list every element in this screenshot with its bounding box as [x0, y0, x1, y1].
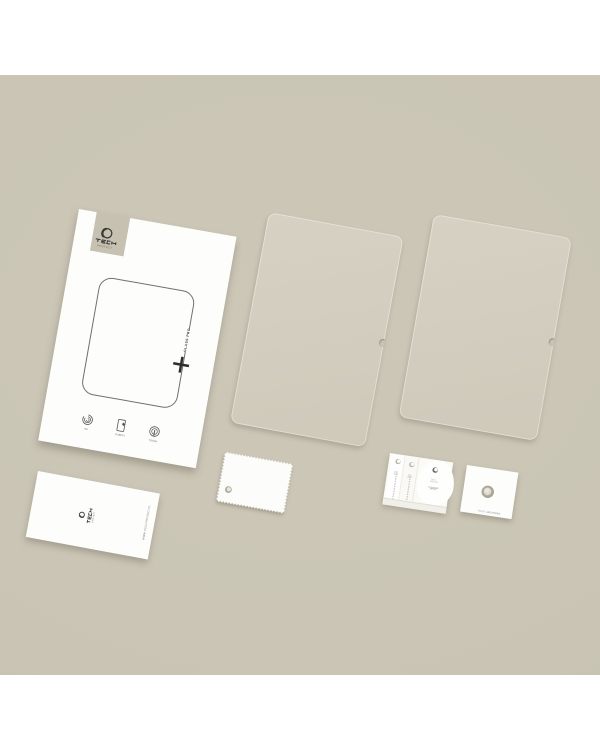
svg-text:PROTECT: PROTECT — [92, 511, 96, 523]
svg-text:PROTECT: PROTECT — [97, 244, 113, 251]
